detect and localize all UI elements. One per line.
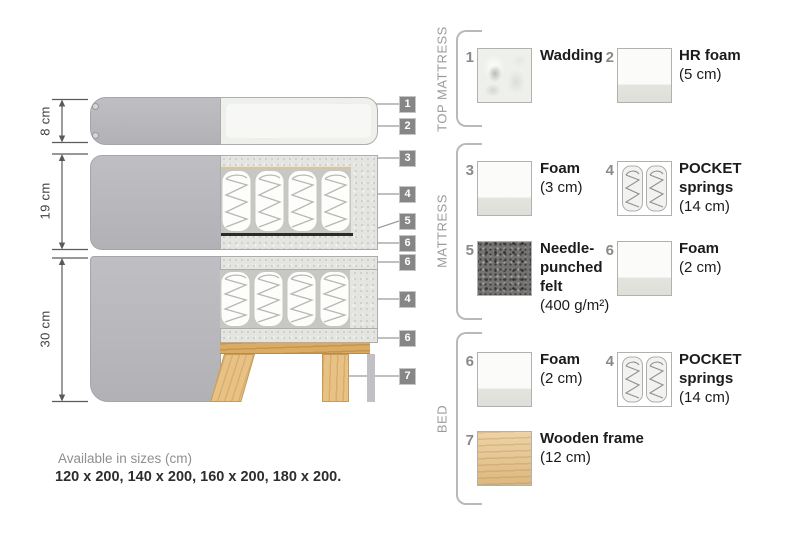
- bed-foam-swatch: [477, 352, 532, 407]
- piping-dot: [92, 103, 99, 110]
- section-label-top-mattress: TOP MATTRESS: [435, 26, 450, 132]
- callout-badge-6c: 6: [399, 330, 416, 347]
- legend-number-3: 3: [459, 162, 474, 179]
- top-mattress-cover: [90, 97, 221, 145]
- legend-label-hr-foam: HR foam (5 cm): [679, 46, 741, 84]
- dimension-arrow-8cm: [52, 100, 88, 143]
- callout-badge-6b: 6: [399, 254, 416, 271]
- section-label-bed: BED: [435, 405, 450, 433]
- legend-number-4b: 4: [599, 353, 614, 370]
- legend-label-bed-pocket-springs: POCKET springs (14 cm): [679, 350, 764, 407]
- callout-badge-1: 1: [399, 96, 416, 113]
- bed-cutaway: [220, 256, 378, 402]
- wadding-shade: [488, 65, 503, 82]
- legend-number-7: 7: [459, 432, 474, 449]
- mattress-cutaway: [220, 155, 378, 250]
- legend-number-2: 2: [599, 49, 614, 66]
- callout-badge-4b: 4: [399, 291, 416, 308]
- available-sizes-caption: Available in sizes (cm): [58, 451, 192, 466]
- dimension-label-top-mattress: 8 cm: [38, 106, 53, 135]
- dimension-label-bed: 30 cm: [38, 311, 53, 348]
- legend-label-foam-2cm: Foam (2 cm): [679, 239, 722, 277]
- pocket-springs-icon: [618, 353, 671, 406]
- legend-number-5: 5: [459, 242, 474, 259]
- bed-cover: [90, 256, 221, 402]
- bed-springs-zone: [220, 270, 378, 328]
- legend-label-pocket-springs: POCKET springs (14 cm): [679, 159, 764, 216]
- legend-number-6b: 6: [459, 353, 474, 370]
- wooden-rail: [220, 343, 370, 354]
- needle-punched-felt-layer: [221, 233, 353, 236]
- foam-2cm-swatch: [617, 241, 672, 296]
- wooden-frame-swatch: [477, 431, 532, 486]
- callout-badge-3: 3: [399, 150, 416, 167]
- felt-swatch: [477, 241, 532, 296]
- dimension-arrow-19cm: [52, 154, 88, 250]
- legend-label-bed-foam: Foam (2 cm): [540, 350, 583, 388]
- pocket-springs-icon: [618, 162, 671, 215]
- available-sizes-list: 120 x 200, 140 x 200, 160 x 200, 180 x 2…: [55, 469, 341, 485]
- dimension-arrow-30cm: [52, 258, 88, 402]
- legend-label-foam-3cm: Foam (3 cm): [540, 159, 583, 197]
- callout-badge-6: 6: [399, 235, 416, 252]
- pocket-springs-row: [221, 169, 351, 233]
- wooden-leg-right: [322, 354, 349, 402]
- callout-badge-2: 2: [399, 118, 416, 135]
- legend-number-6: 6: [599, 242, 614, 259]
- wadding-swatch: [477, 48, 532, 103]
- callout-badge-5: 5: [399, 213, 416, 230]
- legend-label-wadding: Wadding: [540, 46, 603, 65]
- bed-top-foam-layer: [220, 256, 378, 270]
- bed-pocket-springs-swatch: [617, 352, 672, 407]
- section-label-mattress: MATTRESS: [435, 194, 450, 268]
- hr-foam-core: [226, 104, 371, 138]
- bed-bottom-foam-layer: [220, 328, 378, 343]
- legend-label-wooden-frame: Wooden frame (12 cm): [540, 429, 644, 467]
- callout-badge-4: 4: [399, 186, 416, 203]
- legend-number-4: 4: [599, 162, 614, 179]
- top-mattress-cutaway: [220, 97, 378, 145]
- legend-number-1: 1: [459, 49, 474, 66]
- bed-construction-infographic: 8 cm 19 cm 30 cm: [0, 0, 800, 533]
- pocket-springs-swatch: [617, 161, 672, 216]
- callout-badge-7: 7: [399, 368, 416, 385]
- bed-side-fabric-strip: [367, 354, 375, 402]
- hr-foam-swatch: [617, 48, 672, 103]
- foam-3cm-swatch: [477, 161, 532, 216]
- mattress-cover: [90, 155, 221, 250]
- pocket-springs-row: [220, 270, 350, 328]
- piping-dot: [92, 132, 99, 139]
- dimension-label-mattress: 19 cm: [38, 183, 53, 220]
